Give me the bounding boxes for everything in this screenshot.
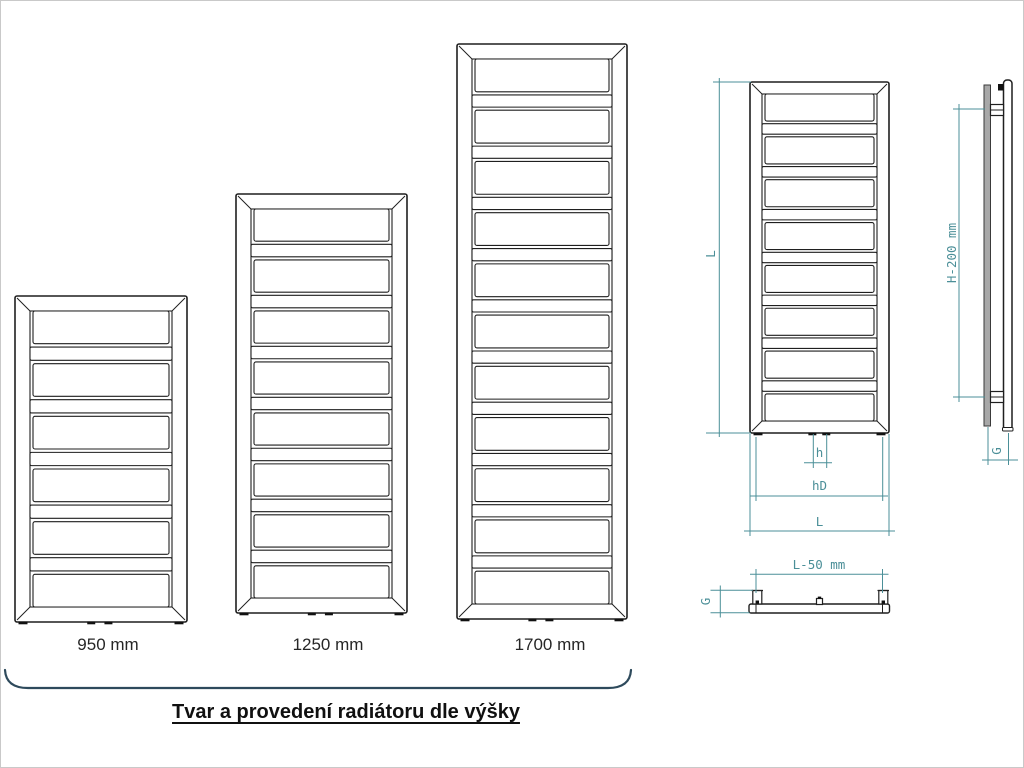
radiator-narrow-slat bbox=[472, 453, 612, 465]
radiator-wide-slat bbox=[475, 366, 609, 399]
radiator-narrow-slat bbox=[472, 556, 612, 568]
pipe-connection-mark bbox=[175, 622, 184, 625]
radiator-wide-slat bbox=[475, 418, 609, 451]
pipe-connection-mark bbox=[395, 613, 404, 616]
pipe-connection-mark bbox=[19, 622, 28, 625]
radiator-narrow-slat bbox=[472, 197, 612, 209]
top-view-drawing bbox=[749, 591, 890, 614]
radiator-wide-slat bbox=[33, 469, 169, 502]
radiator-narrow-slat bbox=[251, 244, 392, 256]
radiator-narrow-slat bbox=[762, 381, 877, 391]
radiator-height-label-1700: 1700 mm bbox=[480, 635, 620, 655]
dim-label-depth-g: G bbox=[989, 447, 1004, 455]
pipe-connection-mark bbox=[545, 619, 553, 622]
radiator-narrow-slat bbox=[762, 252, 877, 262]
radiator-outline bbox=[15, 296, 187, 624]
radiator-narrow-slat bbox=[251, 346, 392, 358]
dim-label-bracket-span-hd: hD bbox=[812, 478, 827, 493]
radiator-narrow-slat bbox=[472, 95, 612, 107]
air-vent-knob bbox=[998, 84, 1004, 91]
pipe-connection-mark bbox=[240, 613, 249, 616]
pipe-connection-mark bbox=[87, 622, 95, 625]
radiator-wide-slat bbox=[475, 264, 609, 297]
radiator-wide-slat bbox=[254, 260, 389, 292]
diagram-title-text: Tvar a provedení radiátoru dle výšky bbox=[172, 701, 520, 723]
diagram-canvas: L h hD L bbox=[0, 0, 1024, 768]
radiator-narrow-slat bbox=[472, 351, 612, 363]
radiator-height-label-1250: 1250 mm bbox=[258, 635, 398, 655]
diagram-title: Tvar a provedení radiátoru dle výšky bbox=[1, 701, 691, 724]
radiator-narrow-slat bbox=[30, 505, 172, 518]
radiator-wide-slat bbox=[765, 394, 874, 421]
radiator-wide-slat bbox=[475, 315, 609, 348]
radiator-narrow-slat bbox=[762, 209, 877, 219]
dim-label-depth-g: G bbox=[698, 598, 713, 606]
pipe-connection-mark bbox=[325, 613, 333, 616]
pipe-connection-mark bbox=[754, 433, 763, 436]
radiator-wide-slat bbox=[254, 362, 389, 394]
radiator-wide-slat bbox=[765, 180, 874, 207]
radiator-narrow-slat bbox=[762, 338, 877, 348]
radiator-wide-slat bbox=[254, 311, 389, 343]
radiator-narrow-slat bbox=[251, 397, 392, 409]
top-center-plug-cap bbox=[818, 597, 821, 599]
radiator-wide-slat bbox=[475, 59, 609, 92]
side-view-drawing bbox=[984, 80, 1013, 431]
radiator-narrow-slat bbox=[251, 448, 392, 460]
radiator-wide-slat bbox=[33, 574, 169, 607]
radiator-narrow-slat bbox=[762, 124, 877, 134]
pipe-connection-mark bbox=[808, 433, 816, 436]
pipe-connection-mark bbox=[528, 619, 536, 622]
radiator-wide-slat bbox=[254, 464, 389, 496]
side-panel-slab bbox=[984, 85, 991, 426]
radiator-wide-slat bbox=[765, 94, 874, 121]
top-bracket-left-pin bbox=[756, 601, 759, 604]
dim-label-pipe-span-h: h bbox=[816, 445, 824, 460]
radiator-wide-slat bbox=[254, 413, 389, 445]
radiator-narrow-slat bbox=[472, 505, 612, 517]
radiator-wide-slat bbox=[33, 311, 169, 344]
radiator-narrow-slat bbox=[30, 347, 172, 360]
radiator-wide-slat bbox=[475, 520, 609, 553]
radiator-wide-slat bbox=[475, 161, 609, 194]
dim-label-width-l: L bbox=[816, 514, 824, 529]
radiator-outline bbox=[457, 44, 627, 621]
radiator-wide-slat bbox=[33, 416, 169, 449]
front-view-drawing bbox=[750, 82, 889, 435]
radiator-narrow-slat bbox=[30, 558, 172, 571]
radiator-wide-slat bbox=[765, 351, 874, 378]
radiators-group bbox=[15, 44, 627, 624]
pipe-connection-mark bbox=[104, 622, 112, 625]
top-bracket-right-pin bbox=[882, 601, 885, 604]
dim-label-l50: L-50 mm bbox=[793, 557, 846, 572]
radiator-narrow-slat bbox=[30, 400, 172, 413]
radiator-wide-slat bbox=[475, 469, 609, 502]
radiator-wide-slat bbox=[33, 364, 169, 397]
radiator-outline bbox=[750, 82, 889, 435]
radiator-wide-slat bbox=[475, 571, 609, 604]
radiator-wide-slat bbox=[765, 223, 874, 250]
radiator-narrow-slat bbox=[472, 402, 612, 414]
radiator-wide-slat bbox=[765, 265, 874, 292]
radiator-narrow-slat bbox=[251, 499, 392, 511]
radiator-wide-slat bbox=[475, 110, 609, 143]
radiator-narrow-slat bbox=[251, 550, 392, 562]
pipe-connection-mark bbox=[877, 433, 886, 436]
dim-label-h200: H-200 mm bbox=[944, 223, 959, 283]
radiator-outline bbox=[236, 194, 407, 615]
top-panel-slab bbox=[749, 604, 890, 613]
radiator-narrow-slat bbox=[30, 452, 172, 465]
radiator-wide-slat bbox=[254, 209, 389, 241]
pipe-connection-mark bbox=[461, 619, 470, 622]
radiator-wide-slat bbox=[33, 522, 169, 555]
radiator-narrow-slat bbox=[762, 295, 877, 305]
grouping-bracket bbox=[5, 670, 631, 688]
radiator-wide-slat bbox=[254, 566, 389, 598]
top-center-plug bbox=[817, 599, 823, 605]
dim-label-height-l: L bbox=[703, 250, 718, 258]
radiator-narrow-slat bbox=[251, 295, 392, 307]
side-tube-base-cap bbox=[1003, 428, 1014, 432]
radiator-narrow-slat bbox=[472, 146, 612, 158]
pipe-connection-mark bbox=[308, 613, 316, 616]
side-collector-tube bbox=[1004, 80, 1013, 430]
radiator-wide-slat bbox=[765, 137, 874, 164]
radiator-wide-slat bbox=[765, 308, 874, 335]
radiator-wide-slat bbox=[475, 213, 609, 246]
radiator-narrow-slat bbox=[472, 300, 612, 312]
radiator-wide-slat bbox=[254, 515, 389, 547]
radiator-narrow-slat bbox=[762, 167, 877, 177]
pipe-connection-mark bbox=[615, 619, 624, 622]
radiator-height-label-950: 950 mm bbox=[38, 635, 178, 655]
radiator-narrow-slat bbox=[472, 249, 612, 261]
